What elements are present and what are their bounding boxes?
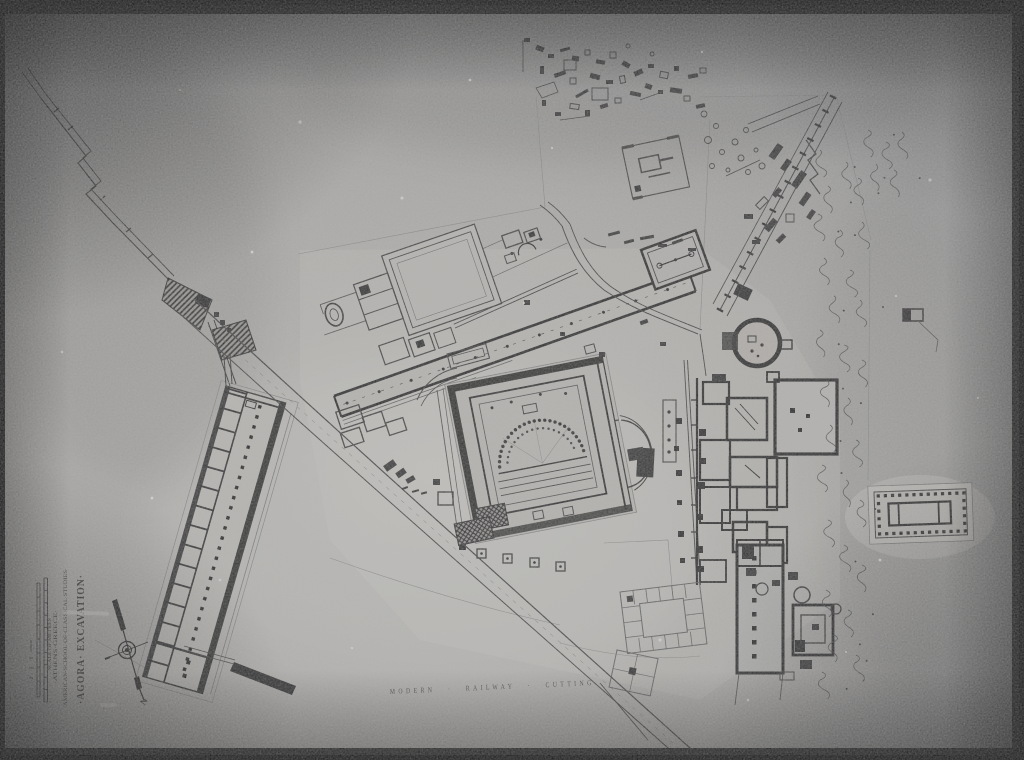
film-grain-overlay [0, 0, 1024, 760]
excavation-plan-drawing: MODERN · RAILWAY · CUTTING ·AGORA· EXCAV… [0, 0, 1024, 760]
agora-plan-photograph: MODERN · RAILWAY · CUTTING ·AGORA· EXCAV… [0, 0, 1024, 760]
